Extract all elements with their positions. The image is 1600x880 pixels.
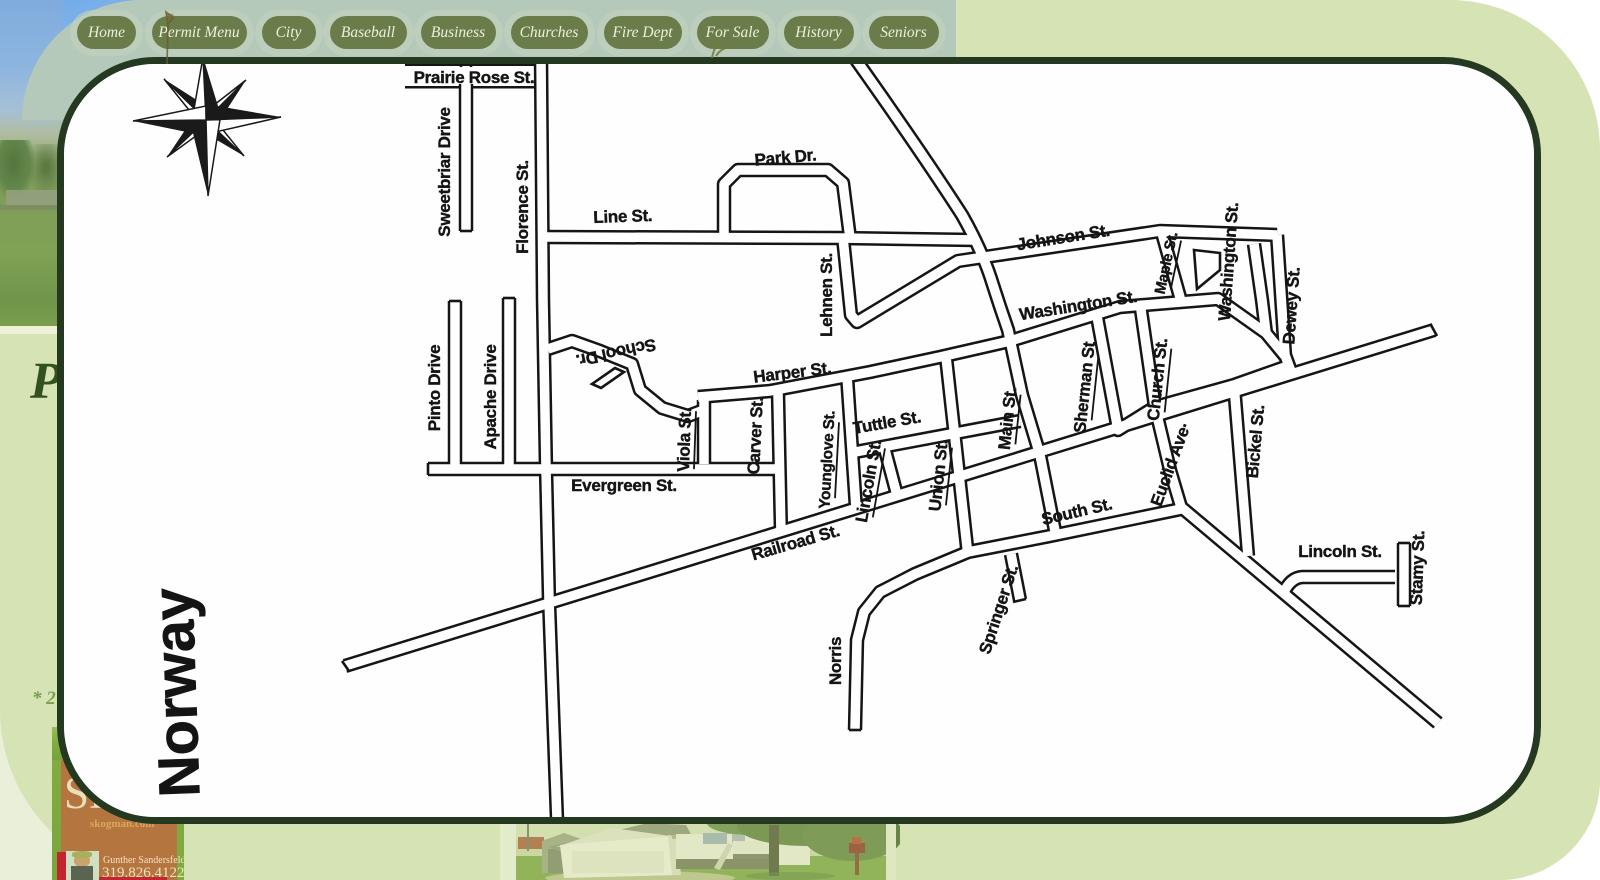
svg-text:Stamy St.: Stamy St. — [1407, 530, 1429, 605]
svg-text:Florence St.: Florence St. — [513, 160, 532, 254]
svg-text:Sweetbriar Drive: Sweetbriar Drive — [435, 107, 454, 236]
svg-text:Apache Drive: Apache Drive — [481, 344, 500, 449]
svg-text:Viola St.: Viola St. — [674, 407, 695, 472]
svg-text:Lincoln St.: Lincoln St. — [1298, 542, 1382, 561]
svg-text:Norway: Norway — [140, 587, 212, 799]
svg-text:Pinto Drive: Pinto Drive — [425, 345, 444, 431]
svg-text:Carver St.: Carver St. — [744, 397, 767, 475]
svg-text:Prairie Rose St.: Prairie Rose St. — [414, 68, 535, 87]
svg-text:Norris: Norris — [826, 637, 845, 685]
svg-text:Lehnen St.: Lehnen St. — [817, 253, 836, 337]
svg-text:Line St.: Line St. — [593, 206, 653, 227]
svg-text:Evergreen St.: Evergreen St. — [571, 476, 677, 495]
